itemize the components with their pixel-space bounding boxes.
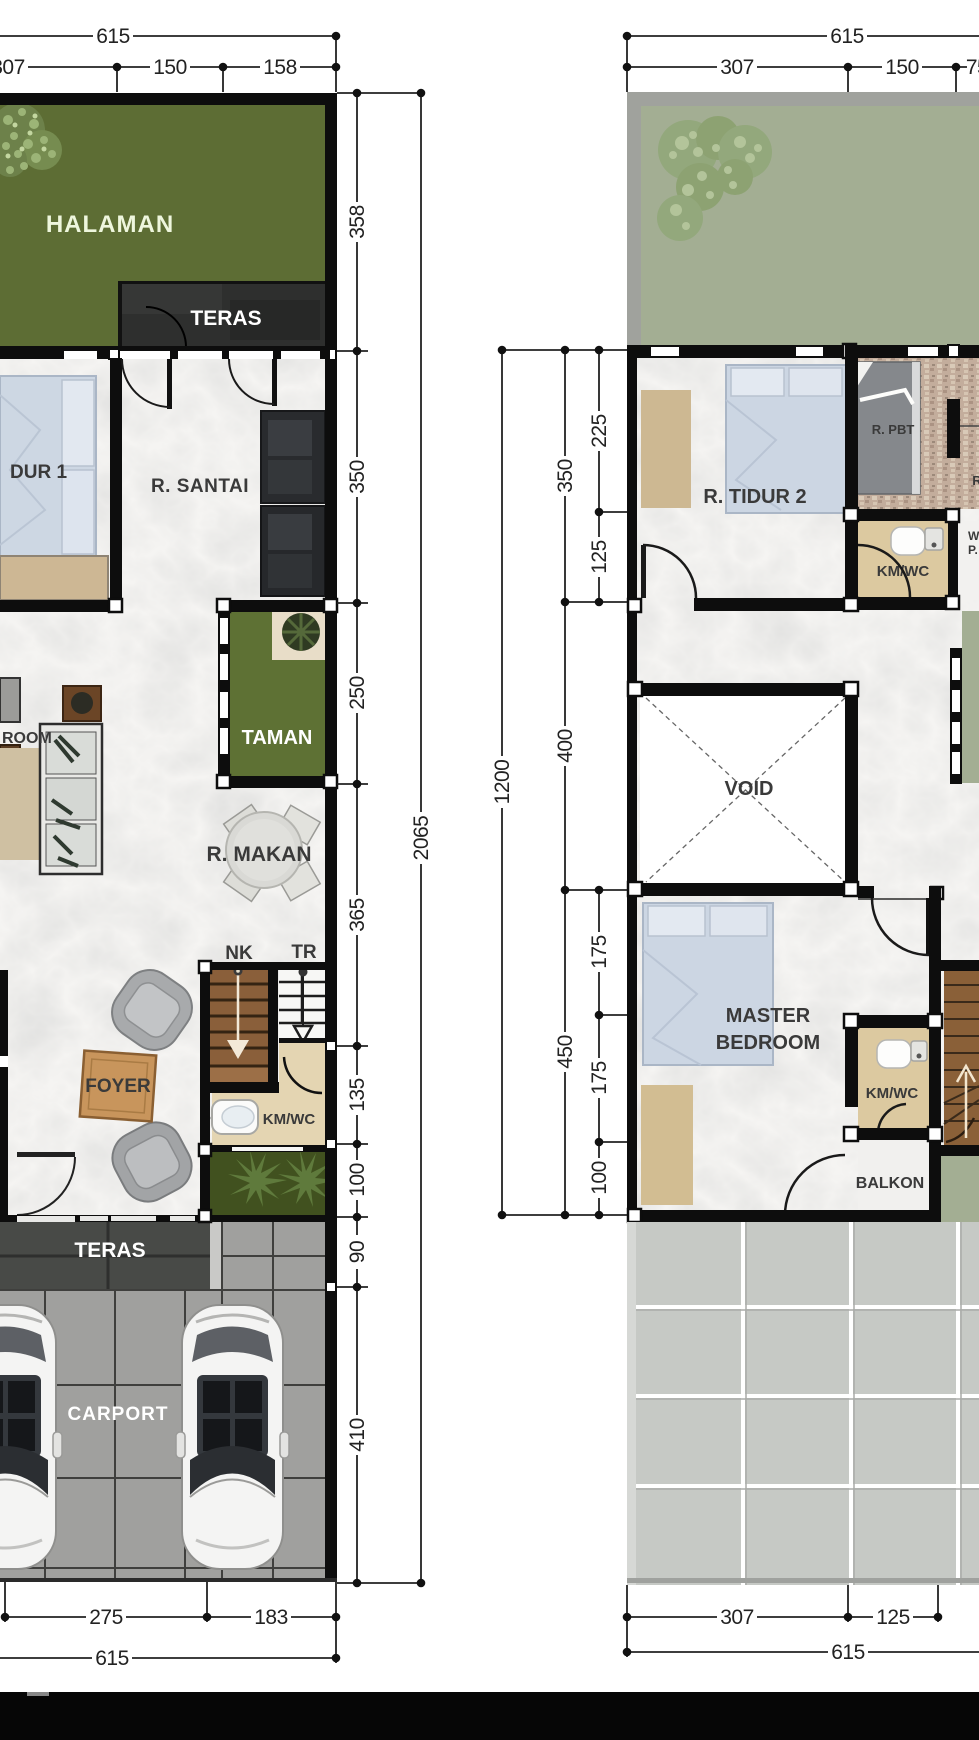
svg-text:275: 275 (89, 1606, 123, 1629)
svg-text:400: 400 (554, 729, 577, 763)
svg-text:307: 307 (720, 1606, 754, 1629)
svg-text:175: 175 (588, 1061, 611, 1095)
svg-text:TERAS: TERAS (190, 307, 261, 330)
svg-text:410: 410 (346, 1418, 369, 1452)
svg-text:615: 615 (95, 1647, 129, 1670)
svg-text:LIVING ROOM: LIVING ROOM (0, 730, 52, 747)
svg-text:158: 158 (263, 56, 297, 79)
svg-text:615: 615 (96, 25, 130, 48)
svg-text:615: 615 (831, 1641, 865, 1664)
svg-text:TERAS: TERAS (74, 1239, 145, 1262)
svg-text:450: 450 (554, 1035, 577, 1069)
svg-text:R. MAKAN: R. MAKAN (207, 843, 312, 866)
svg-text:100: 100 (588, 1161, 611, 1195)
svg-text:KM/WC: KM/WC (866, 1085, 919, 1102)
svg-text:225: 225 (588, 414, 611, 448)
svg-text:TR: TR (291, 942, 317, 963)
svg-text:250: 250 (346, 676, 369, 710)
svg-text:150: 150 (885, 56, 919, 79)
svg-text:FOYER: FOYER (85, 1076, 151, 1097)
svg-text:HALAMAN: HALAMAN (46, 211, 174, 238)
svg-text:150: 150 (153, 56, 187, 79)
svg-text:183: 183 (254, 1606, 288, 1629)
svg-text:175: 175 (588, 935, 611, 969)
svg-text:DUR 1: DUR 1 (10, 462, 67, 483)
svg-text:VOID: VOID (725, 778, 774, 800)
svg-text:W.: W. (968, 529, 979, 543)
svg-text:75: 75 (966, 56, 979, 79)
svg-text:MASTER: MASTER (726, 1005, 811, 1027)
svg-text:R. TIDUR 2: R. TIDUR 2 (703, 486, 806, 508)
svg-text:R. SANTAI: R. SANTAI (151, 476, 249, 497)
svg-text:NK: NK (225, 943, 253, 964)
svg-text:100: 100 (346, 1163, 369, 1197)
svg-text:135: 135 (346, 1078, 369, 1112)
svg-text:125: 125 (588, 540, 611, 574)
svg-text:615: 615 (830, 25, 864, 48)
svg-text:307: 307 (0, 56, 25, 79)
svg-text:CARPORT: CARPORT (68, 1404, 169, 1425)
svg-text:307: 307 (720, 56, 754, 79)
svg-text:350: 350 (346, 460, 369, 494)
svg-text:350: 350 (554, 459, 577, 493)
svg-text:BEDROOM: BEDROOM (716, 1032, 820, 1054)
svg-text:R. PBT: R. PBT (872, 422, 915, 437)
svg-text:125: 125 (876, 1606, 910, 1629)
svg-text:BALKON: BALKON (856, 1175, 924, 1192)
svg-text:1200: 1200 (491, 760, 514, 805)
svg-text:KM/WC: KM/WC (263, 1111, 316, 1128)
svg-text:358: 358 (346, 205, 369, 239)
svg-text:P.: P. (968, 543, 978, 557)
svg-text:R: R (972, 473, 979, 488)
svg-text:2065: 2065 (410, 816, 433, 861)
svg-text:TAMAN: TAMAN (242, 727, 313, 749)
svg-text:90: 90 (346, 1241, 369, 1263)
svg-text:365: 365 (346, 898, 369, 932)
